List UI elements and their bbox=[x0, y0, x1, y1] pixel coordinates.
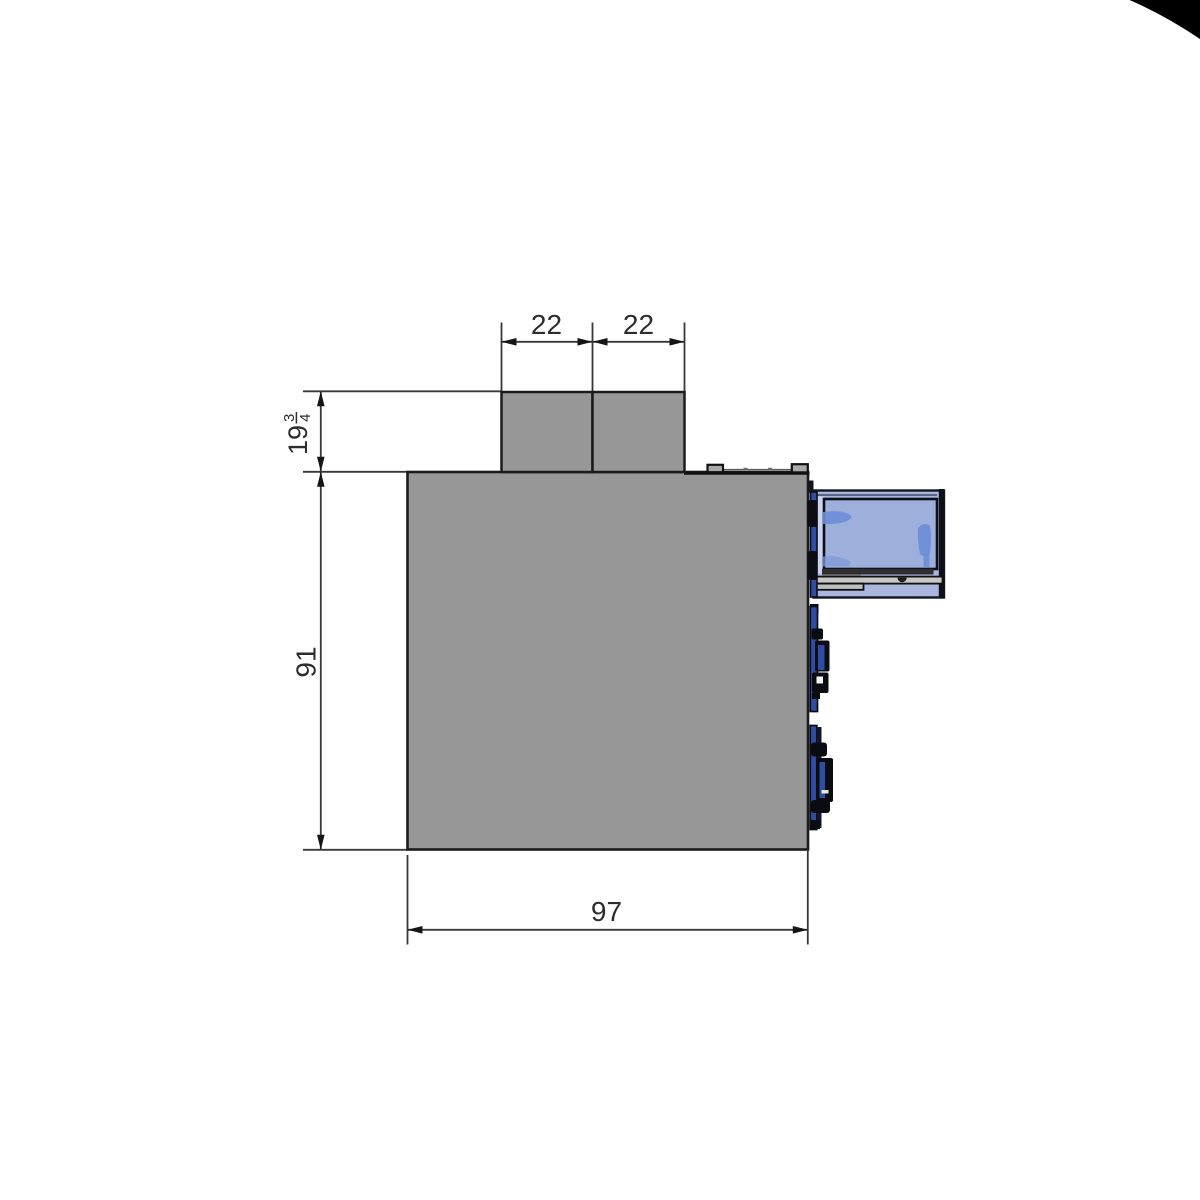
svg-text:4: 4 bbox=[297, 414, 314, 422]
svg-text:22: 22 bbox=[623, 309, 654, 340]
svg-text:3: 3 bbox=[281, 414, 298, 422]
svg-text:91: 91 bbox=[291, 646, 322, 677]
svg-text:19: 19 bbox=[283, 425, 313, 455]
svg-text:22: 22 bbox=[531, 309, 562, 340]
svg-text:97: 97 bbox=[591, 896, 622, 927]
